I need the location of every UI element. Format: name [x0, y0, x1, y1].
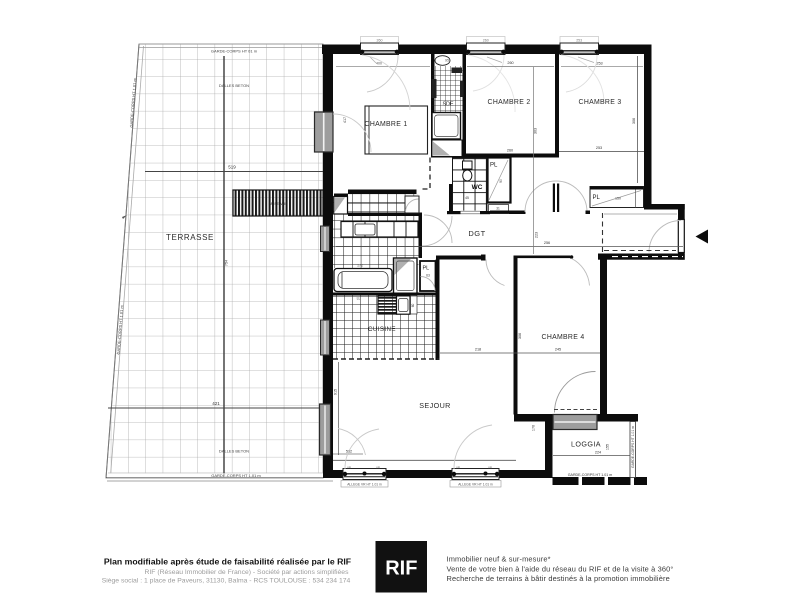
- svg-text:RIF (Réseau Immobilier de Fra: RIF (Réseau Immobilier de France) - Soci…: [145, 569, 350, 576]
- svg-text:45: 45: [465, 196, 469, 200]
- svg-text:CHAMBRE 3: CHAMBRE 3: [579, 99, 622, 106]
- svg-text:Vente de votre bien à l'aide d: Vente de votre bien à l'aide du réseau d…: [447, 565, 674, 574]
- svg-text:253: 253: [576, 39, 582, 43]
- svg-text:400: 400: [376, 62, 382, 66]
- svg-text:260: 260: [377, 39, 383, 43]
- svg-text:DGT: DGT: [468, 229, 485, 238]
- svg-text:SEJOUR: SEJOUR: [419, 401, 451, 410]
- svg-text:GARDE-CORPS HT 1.01 m: GARDE-CORPS HT 1.01 m: [568, 473, 612, 477]
- svg-text:RIF: RIF: [385, 558, 417, 580]
- svg-text:260: 260: [483, 39, 489, 43]
- svg-text:223: 223: [535, 232, 539, 238]
- svg-text:519: 519: [228, 165, 236, 170]
- svg-text:GARDE-CORPS HT 1.01 m: GARDE-CORPS HT 1.01 m: [631, 426, 635, 468]
- svg-text:SDE: SDE: [442, 102, 453, 108]
- svg-text:218: 218: [475, 348, 481, 352]
- svg-text:421: 421: [212, 401, 220, 406]
- svg-text:63: 63: [426, 274, 430, 278]
- svg-text:256: 256: [544, 241, 550, 245]
- svg-text:155: 155: [606, 444, 610, 450]
- svg-text:245: 245: [555, 348, 561, 352]
- svg-text:CHAMBRE 4: CHAMBRE 4: [542, 334, 585, 341]
- svg-text:VR: VR: [347, 465, 351, 469]
- svg-text:306: 306: [632, 118, 636, 124]
- svg-text:VR: VR: [488, 465, 492, 469]
- svg-text:WC: WC: [472, 184, 483, 191]
- svg-text:754: 754: [225, 260, 229, 266]
- svg-text:306: 306: [518, 333, 522, 339]
- svg-text:150: 150: [615, 197, 621, 201]
- svg-text:260: 260: [507, 149, 513, 153]
- svg-text:Siège social : 1 place de Pave: Siège social : 1 place de Paveurs, 31130…: [102, 578, 351, 585]
- svg-text:PL: PL: [593, 195, 601, 201]
- svg-text:260: 260: [507, 61, 513, 65]
- svg-text:Immobilier neuf & sur-mesure*: Immobilier neuf & sur-mesure*: [447, 555, 551, 564]
- svg-text:60: 60: [411, 304, 415, 308]
- svg-text:253: 253: [596, 62, 602, 66]
- svg-text:95: 95: [445, 59, 449, 63]
- svg-text:253: 253: [596, 146, 602, 150]
- svg-text:GARDE-CORPS HT 01 m: GARDE-CORPS HT 01 m: [211, 49, 258, 54]
- svg-text:417: 417: [343, 117, 347, 123]
- svg-text:TERRASSE: TERRASSE: [166, 233, 214, 242]
- svg-text:PL: PL: [490, 163, 498, 169]
- svg-text:ALLEGE VR HT 1.01 m: ALLEGE VR HT 1.01 m: [347, 482, 382, 486]
- svg-text:CUISINE: CUISINE: [368, 326, 396, 333]
- svg-text:GARDE-CORPS HT 1.01 m: GARDE-CORPS HT 1.01 m: [211, 473, 261, 478]
- svg-text:Plan modifiable après étude de: Plan modifiable après étude de faisabili…: [104, 557, 351, 567]
- svg-text:90: 90: [499, 179, 503, 183]
- svg-text:ALLEGE VR HT 1.01 m: ALLEGE VR HT 1.01 m: [458, 482, 493, 486]
- svg-text:915: 915: [334, 389, 338, 395]
- svg-text:172: 172: [357, 264, 363, 268]
- svg-text:31: 31: [496, 207, 500, 211]
- svg-text:VR: VR: [376, 465, 380, 469]
- svg-text:DALLES BETON: DALLES BETON: [219, 83, 249, 88]
- svg-text:LOGGIA: LOGGIA: [571, 440, 601, 449]
- svg-text:LL: LL: [357, 297, 361, 301]
- svg-text:DALLES BETON: DALLES BETON: [219, 449, 249, 454]
- svg-text:Recherche de terrains à bâti: Recherche de terrains à bâtir destinés à…: [447, 574, 670, 583]
- svg-text:170: 170: [532, 425, 536, 431]
- svg-text:BRISE-VUE: BRISE-VUE: [269, 202, 289, 206]
- svg-text:CHAMBRE 2: CHAMBRE 2: [488, 99, 531, 106]
- svg-text:CHAMBRE 1: CHAMBRE 1: [365, 121, 408, 128]
- svg-text:PL: PL: [423, 266, 430, 272]
- svg-text:VR: VR: [456, 465, 460, 469]
- svg-text:303: 303: [534, 128, 538, 134]
- svg-text:224: 224: [595, 451, 601, 455]
